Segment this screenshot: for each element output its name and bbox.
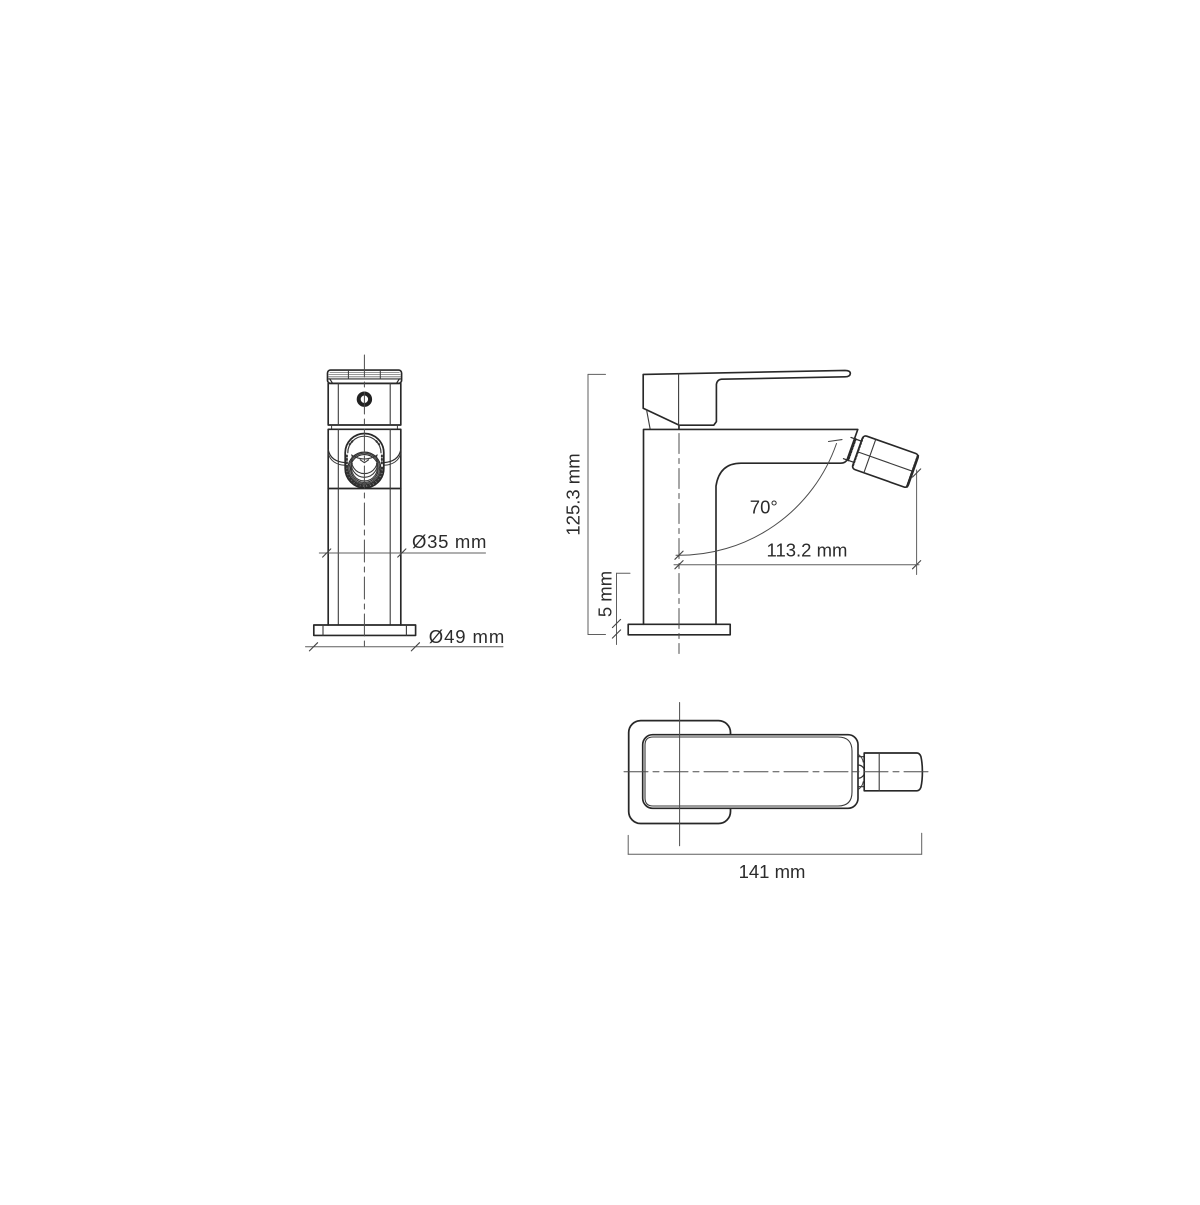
svg-text:113.2 mm: 113.2 mm xyxy=(767,540,848,561)
svg-text:125.3 mm: 125.3 mm xyxy=(563,453,584,535)
svg-text:Ø49 mm: Ø49 mm xyxy=(429,626,505,647)
svg-text:Ø35 mm: Ø35 mm xyxy=(412,531,487,552)
svg-text:141 mm: 141 mm xyxy=(739,861,806,882)
svg-text:70°: 70° xyxy=(750,496,778,517)
svg-text:5 mm: 5 mm xyxy=(595,571,616,617)
